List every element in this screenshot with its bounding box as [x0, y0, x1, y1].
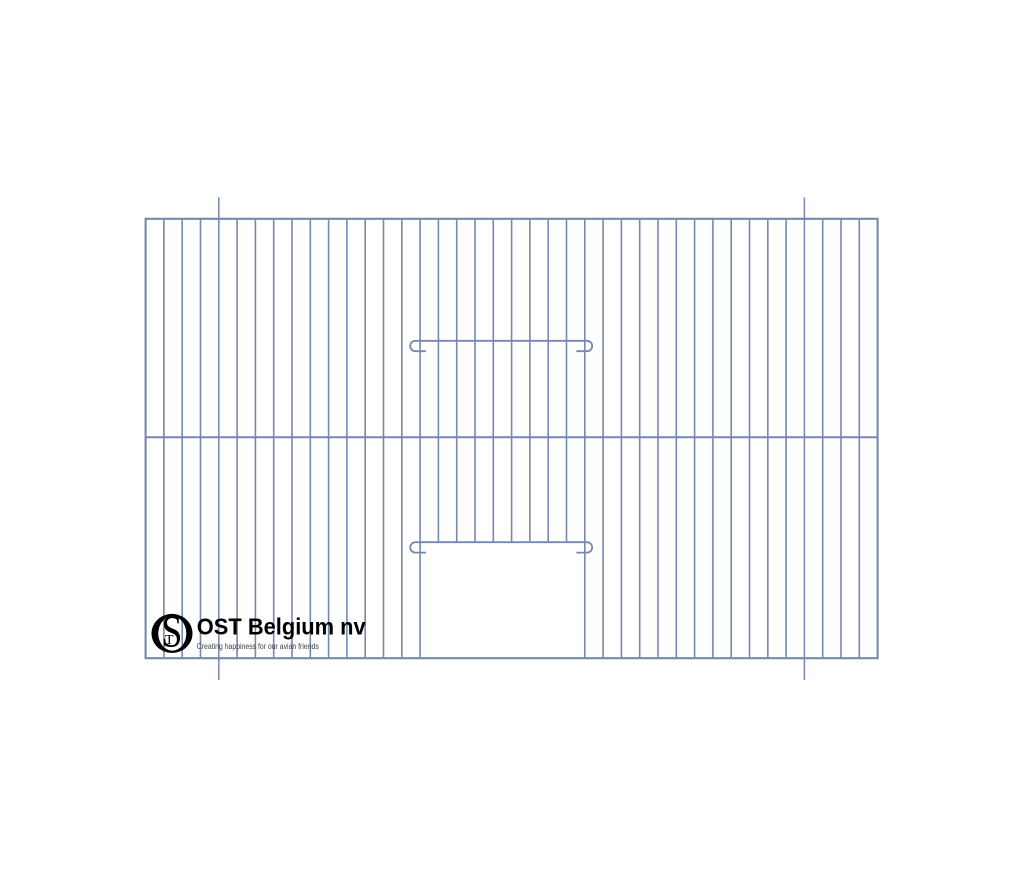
svg-text:OST Belgium nv: OST Belgium nv [197, 614, 366, 640]
svg-text:S: S [161, 607, 182, 657]
svg-text:T: T [165, 633, 174, 648]
svg-text:Creating happiness for our avi: Creating happiness for our avian friends [197, 642, 319, 651]
